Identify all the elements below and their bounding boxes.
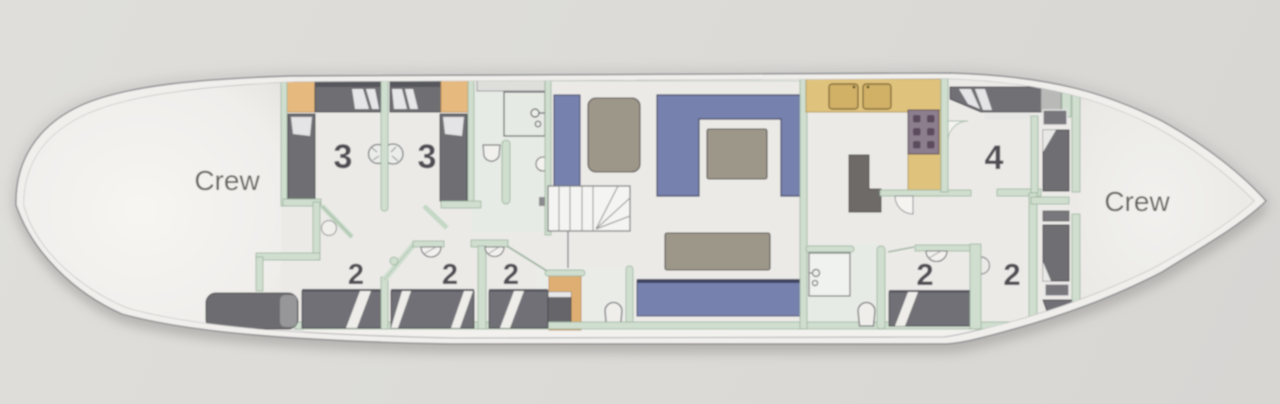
svg-text:2: 2 (348, 259, 364, 291)
svg-text:Crew: Crew (1104, 186, 1170, 217)
svg-text:2: 2 (442, 259, 458, 291)
svg-text:2: 2 (916, 257, 933, 292)
svg-text:2: 2 (1003, 257, 1020, 292)
svg-text:3: 3 (334, 138, 353, 176)
svg-text:2: 2 (503, 259, 519, 291)
svg-text:Crew: Crew (194, 165, 260, 196)
svg-text:4: 4 (985, 139, 1004, 177)
svg-text:3: 3 (418, 138, 437, 176)
